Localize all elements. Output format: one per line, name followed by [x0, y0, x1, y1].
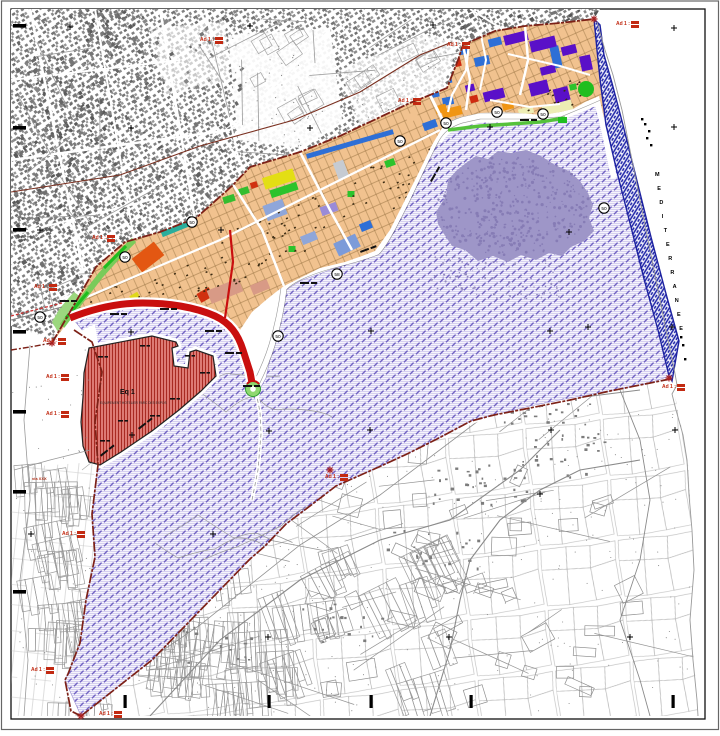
svg-text:Ad 1 :: Ad 1 : — [398, 98, 412, 104]
svg-text:E: E — [666, 242, 670, 248]
svg-text:Ad 1 :: Ad 1 : — [31, 667, 45, 673]
svg-text:D: D — [659, 200, 663, 206]
svg-text:Ad 1 :: Ad 1 : — [62, 531, 76, 537]
svg-text:50: 50 — [37, 315, 43, 321]
svg-text:M: M — [655, 172, 660, 178]
svg-text:via XXX: via XXX — [32, 476, 47, 481]
svg-text:N: N — [675, 298, 679, 304]
svg-text:58: 58 — [334, 272, 340, 278]
svg-text:Eq 1: Eq 1 — [120, 389, 135, 396]
svg-text:Ad 1 :: Ad 1 : — [616, 21, 630, 27]
svg-text:50: 50 — [122, 255, 128, 261]
svg-text:50: 50 — [494, 110, 500, 116]
svg-text:E: E — [677, 312, 681, 318]
svg-text:50: 50 — [601, 206, 607, 212]
svg-text:Ad 1 :: Ad 1 : — [447, 42, 461, 48]
svg-text:Ad 1 :: Ad 1 : — [99, 711, 113, 717]
svg-text:Ad 1 :: Ad 1 : — [46, 411, 60, 417]
svg-text:50: 50 — [275, 334, 281, 340]
svg-text:Ad 1 :: Ad 1 : — [200, 37, 214, 43]
svg-text:A: A — [673, 284, 677, 290]
svg-text:Ad 1 :: Ad 1 : — [662, 384, 676, 390]
svg-text:50: 50 — [189, 220, 195, 226]
svg-text:R: R — [670, 270, 674, 276]
svg-text:Ad 1 :: Ad 1 : — [92, 235, 106, 241]
svg-text:Ad 1 :: Ad 1 : — [43, 338, 57, 344]
svg-text:E: E — [679, 326, 683, 332]
svg-text:E: E — [657, 186, 661, 192]
svg-text:EQUIPEMENT HOTELIER PARC DES E: EQUIPEMENT HOTELIER PARC DES EXPOS — [100, 401, 167, 405]
svg-text:50: 50 — [540, 112, 546, 118]
svg-text:Ad 1 :: Ad 1 : — [46, 374, 60, 380]
svg-text:Ad 1 :: Ad 1 : — [34, 284, 48, 290]
svg-text:50: 50 — [443, 121, 449, 127]
svg-text:Ad 1 :: Ad 1 : — [325, 474, 339, 480]
svg-text:50: 50 — [397, 139, 403, 145]
svg-text:R: R — [668, 256, 672, 262]
